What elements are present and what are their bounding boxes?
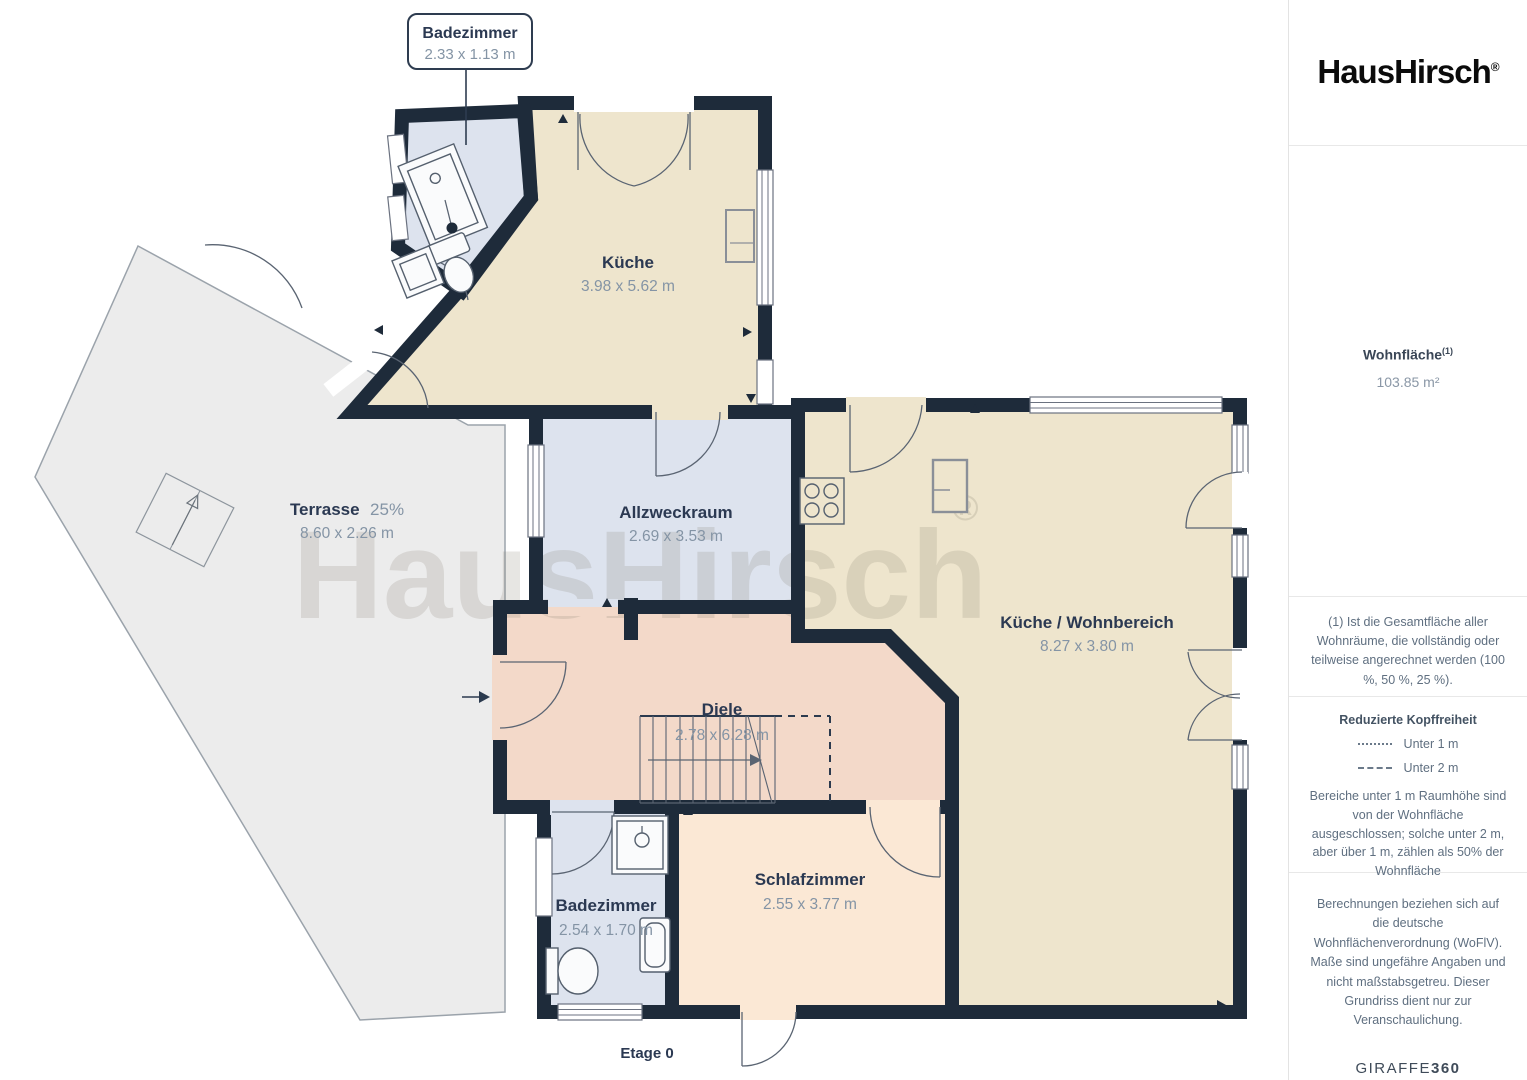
living-area-section: Wohnfläche(1) 103.85 m² <box>1289 146 1527 597</box>
door-allzweckraum-gap <box>652 404 728 420</box>
dims-kueche: 3.98 x 5.62 m <box>581 278 675 295</box>
footnote-text: (1) Ist die Gesamtfläche aller Wohnräume… <box>1309 613 1507 691</box>
window-kueche-lower <box>757 360 773 404</box>
logo-section: HausHirsch® <box>1289 0 1527 146</box>
window-bad-bottom <box>558 1004 642 1020</box>
window-kueche-right <box>757 170 773 305</box>
disclaimer-text: Berechnungen beziehen sich auf die deuts… <box>1307 895 1509 1031</box>
watermark-text: HausHirsch <box>293 506 988 645</box>
door-wohnbereich-top-gap <box>846 397 926 413</box>
label-kueche: Küche <box>602 253 654 272</box>
info-sidebar: HausHirsch® Wohnfläche(1) 103.85 m² (1) … <box>1288 0 1527 1080</box>
legend-under-2m: Unter 2 m <box>1289 761 1527 775</box>
callout-label: Badezimmer <box>422 25 517 42</box>
headroom-title: Reduzierte Kopffreiheit <box>1289 713 1527 727</box>
dims-wohnbereich: 8.27 x 3.80 m <box>1040 638 1134 655</box>
dotted-line-sample <box>1358 743 1392 745</box>
dims-schlafzimmer: 2.55 x 3.77 m <box>763 896 857 913</box>
dims-allzweckraum: 2.69 x 3.53 m <box>629 528 723 545</box>
drain-dot <box>447 223 458 234</box>
wall-stub <box>624 598 638 640</box>
fridge <box>933 460 967 512</box>
floor-label: Etage 0 <box>620 1045 673 1062</box>
stove <box>800 478 844 524</box>
kitchen-appliance <box>726 210 754 262</box>
window-wohnbereich-top <box>1030 397 1222 413</box>
label-badezimmer: Badezimmer <box>555 896 656 915</box>
window-right-2 <box>1232 535 1248 577</box>
giraffe360-brand: GIRAFFE360 <box>1307 1057 1509 1080</box>
dims-diele: 2.78 x 6.28 m <box>675 727 769 744</box>
dims-badezimmer: 2.54 x 1.70 m <box>559 922 653 939</box>
living-area-title: Wohnfläche(1) <box>1289 346 1527 363</box>
label-schlafzimmer: Schlafzimmer <box>755 870 866 889</box>
disclaimer-section: Berechnungen beziehen sich auf die deuts… <box>1289 873 1527 1080</box>
registered-mark: ® <box>1491 60 1499 74</box>
label-terrasse: Terrasse 25% <box>290 500 404 519</box>
label-allzweckraum: Allzweckraum <box>619 503 732 522</box>
door-kueche-top-gap <box>574 95 694 112</box>
window-right-3 <box>1232 745 1248 789</box>
door-schlafzimmer-bottom-gap <box>740 1004 796 1020</box>
footnote-section: (1) Ist die Gesamtfläche aller Wohnräume… <box>1289 597 1527 698</box>
legend-under-1m: Unter 1 m <box>1289 737 1527 751</box>
door-right-gap <box>1232 472 1248 528</box>
headroom-section: Reduzierte Kopffreiheit Unter 1 m Unter … <box>1289 697 1527 873</box>
label-wohnbereich: Küche / Wohnbereich <box>1000 613 1174 632</box>
dims-terrasse: 8.60 x 2.26 m <box>300 525 394 542</box>
dashed-line-sample <box>1358 767 1392 769</box>
callout-dims: 2.33 x 1.13 m <box>425 46 516 63</box>
floorplan-canvas: HausHirsch ® <box>0 0 1288 1080</box>
legend-under-2m-label: Unter 2 m <box>1404 761 1459 775</box>
label-diele: Diele <box>702 700 743 719</box>
window-allzweckraum <box>528 445 544 537</box>
door-schlafzimmer-gap <box>866 800 940 815</box>
footnote-marker: (1) <box>1442 346 1453 356</box>
window-bad-left <box>536 838 552 916</box>
floorplan-svg: HausHirsch ® <box>0 0 1288 1080</box>
shower-bottom-bath <box>612 816 668 874</box>
headroom-note: Bereiche unter 1 m Raumhöhe sind von der… <box>1289 787 1527 881</box>
window-right-1 <box>1232 425 1248 473</box>
living-area-value: 103.85 m² <box>1289 374 1527 390</box>
toilet-bottom-bath <box>546 948 598 994</box>
legend-under-1m-label: Unter 1 m <box>1404 737 1459 751</box>
brand-logo: HausHirsch® <box>1317 53 1498 91</box>
door-bad-bottom-gap <box>550 800 614 815</box>
